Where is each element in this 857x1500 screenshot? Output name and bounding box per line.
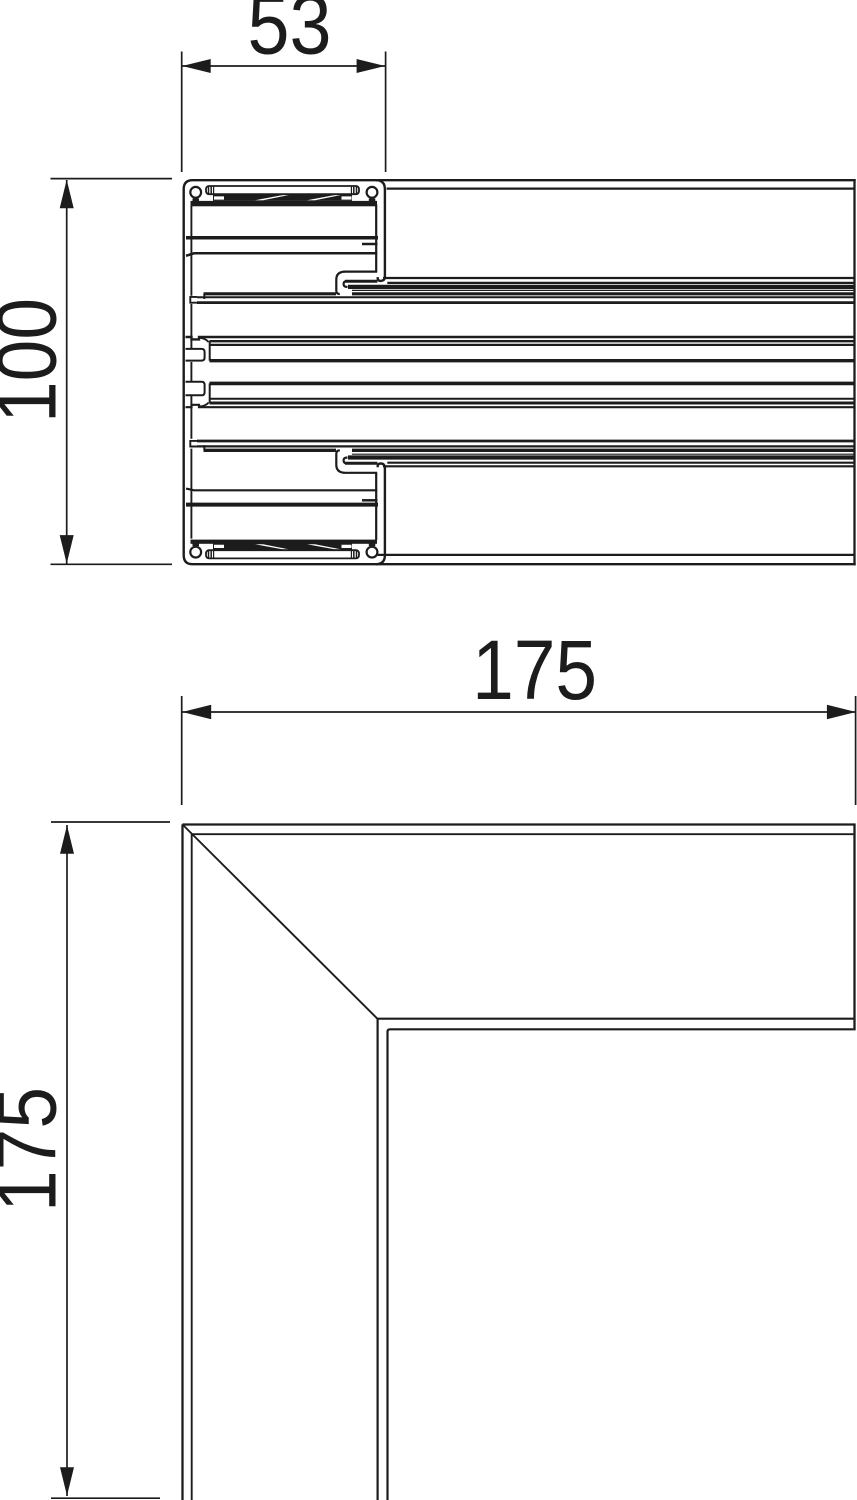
svg-text:53: 53 [248,0,332,72]
svg-text:175: 175 [472,623,597,717]
svg-text:100: 100 [0,298,73,423]
svg-text:175: 175 [0,1087,73,1212]
